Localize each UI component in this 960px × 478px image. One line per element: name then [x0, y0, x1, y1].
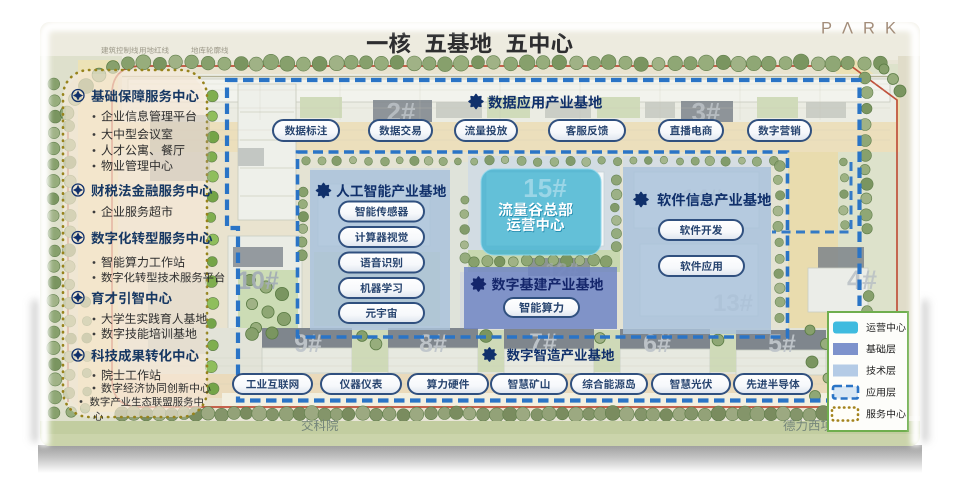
- svg-text:5#: 5#: [768, 330, 796, 358]
- svg-text:4#: 4#: [847, 265, 877, 295]
- svg-text:PΛRK: PΛRK: [821, 20, 906, 38]
- svg-text:10#: 10#: [237, 267, 279, 295]
- svg-text:6#: 6#: [643, 330, 671, 358]
- svg-text:8#: 8#: [419, 330, 447, 358]
- svg-text:15#: 15#: [523, 173, 567, 203]
